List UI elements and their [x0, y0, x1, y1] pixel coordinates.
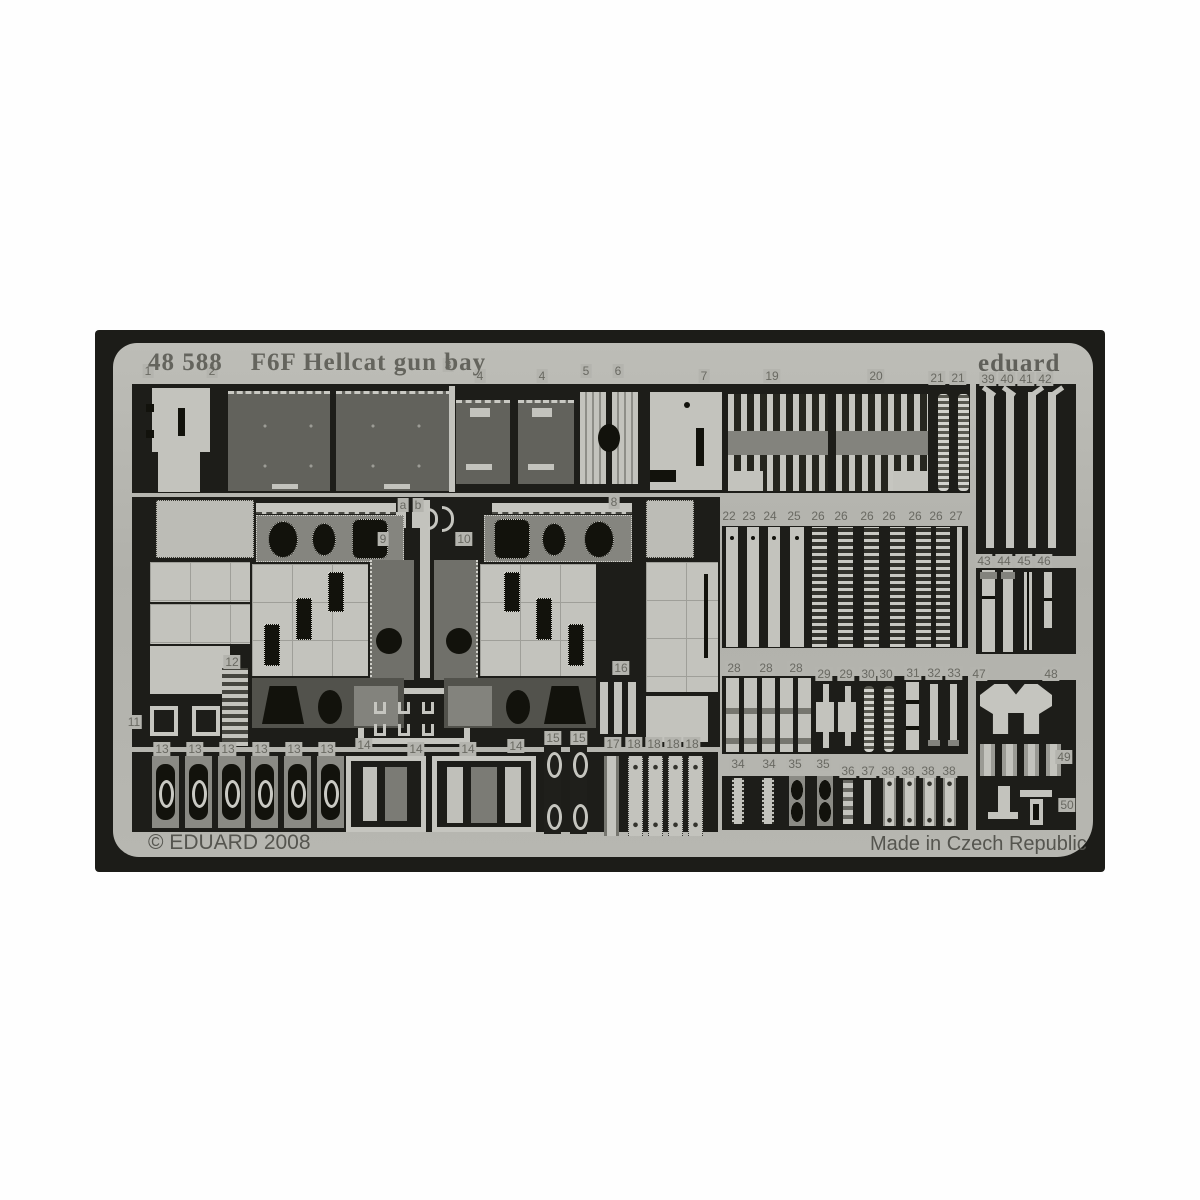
copyright-text: © EDUARD 2008	[148, 831, 311, 855]
made-in-text: Made in Czech Republic	[870, 833, 1056, 856]
fret-header: 48 588F6F Hellcat gun bay	[148, 349, 486, 377]
product-title: F6F Hellcat gun bay	[251, 349, 486, 376]
brand-logo-eduard: eduard	[978, 350, 1060, 378]
product-photo-page: 48 588F6F Hellcat gun bay eduard © EDUAR…	[0, 0, 1200, 1200]
photo-etch-fret	[113, 343, 1093, 857]
catalog-number: 48 588	[148, 349, 223, 376]
